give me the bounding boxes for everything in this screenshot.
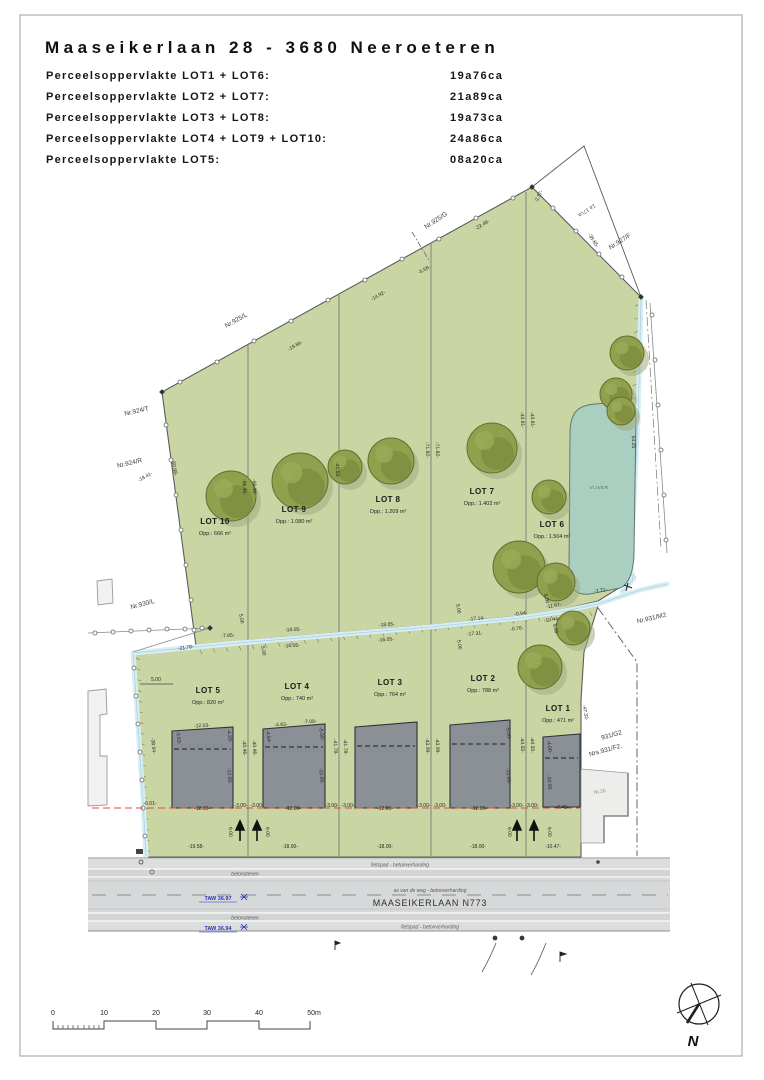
dimension-label: -12.00- [194,806,210,812]
area-row-label: Perceelsoppervlakte LOT5: [46,154,220,166]
lot-area: Opp.: 666 m² [199,531,231,537]
fence-post-icon [400,257,404,261]
lot-area: Opp.: 820 m² [192,700,224,706]
dimension-label: -18.05- [284,643,300,650]
lot-area: Opp.: 788 m² [467,688,499,694]
scale-tick-label: 30 [203,1010,211,1017]
dimension-label: -19.58- [188,844,204,850]
dimension-label: -41.78- [342,739,349,755]
dimension-label: -44.55- [529,737,536,753]
fence-post-icon [183,627,187,631]
pond-label: VIJVER [590,485,609,490]
fence-post-icon [437,237,441,241]
dimension-label: 54.25 [630,436,636,449]
neighbour-building [88,689,107,806]
dimension-label: -47.32- [581,705,590,722]
dimension-label: -3.00- [510,803,523,809]
stones-label-bottom: betonstenen [231,916,259,922]
parcel-label: Nrs.931/F2. [588,743,623,759]
area-row-label: Perceelsoppervlakte LOT2 + LOT7: [46,91,270,103]
area-row-value: 08a20ca [450,154,503,166]
lot-area: Opp.: 1.504 m² [534,534,571,540]
fence-post-icon [164,423,168,427]
dimension-label: -71.82- [434,442,441,458]
dimension-label: -41.78- [332,739,339,755]
lot-label: LOT 5 [196,686,221,695]
dimension-label: -4.93- [274,722,288,729]
fence-post-icon [252,339,256,343]
dimension-label: -18.00- [282,844,298,850]
scale-tick-label: 10 [100,1010,108,1017]
fence-post-icon [363,278,367,282]
dimension-label: 9.00 [546,827,553,837]
dimension-label: -12.00- [225,768,232,785]
area-row-label: Perceelsoppervlakte LOT4 + LOT9 + LOT10: [46,133,327,145]
dimension-label: -7.85- [221,633,235,640]
dimension-label: -3.00- [325,803,338,809]
dimension-label: 5.00 [151,677,161,683]
dimension-label: -3.00- [525,803,538,809]
dimension-label: -18.41- [137,470,154,483]
lot-label: LOT 3 [378,678,403,687]
lot-label: LOT 10 [200,517,230,526]
parcel-label: 931/G2 [600,729,623,741]
lot-label: LOT 9 [282,505,307,514]
dimension-label: -18.00- [470,844,486,850]
road-maaseikerlaan: fietspad - betonverharding betonstenen a… [88,858,670,932]
dimension-label: -18.05- [379,621,396,628]
fence-post-icon [140,778,144,782]
fence-post-icon [474,216,478,220]
dimension-label: -18.00- [377,844,393,850]
lot-label: LOT 1 [546,704,571,713]
dimension-label: -6.01- [143,801,156,807]
fence-post-icon [597,252,601,256]
fence-post-icon [289,319,293,323]
fence-post-icon [178,380,182,384]
dimension-label: -16.05- [378,636,395,643]
lot-label: LOT 8 [376,495,401,504]
parcel-label: Nr.924/R [116,457,143,470]
fence-post-icon [659,448,663,452]
lot-label: LOT 7 [470,487,495,496]
fence-post-icon [650,313,654,317]
fence-post-icon [200,626,204,630]
fence-post-icon [93,631,97,635]
dimension-label: -12.00- [285,806,301,812]
dimension-label: -10.47- [545,844,561,850]
fence-post-icon [111,630,115,634]
dimension-label: -12.00- [471,806,487,812]
fence-post-icon [215,360,219,364]
dimension-label: -10.00- [545,775,552,792]
fence-post-icon [136,722,140,726]
cycleway-label-bottom: fietspad - betonverharding [401,925,459,931]
dimension-label: -7.40- [555,805,568,811]
fence-post-icon [184,563,188,567]
fence-post-icon [174,493,178,497]
fence-post-icon [620,275,624,279]
cycleway-label-top: fietspad - betonverharding [371,863,429,869]
lot-area: Opp.: 764 m² [374,692,406,698]
lot-area: Opp.: 1.209 m² [370,509,407,515]
plan-title: Maaseikerlaan 28 - 3680 Neeroeteren [45,38,499,58]
area-row-value: 19a73ca [450,112,503,124]
neighbour-building [97,579,113,605]
dimension-label: -3.00- [234,803,247,809]
scale-tick-label: 40 [255,1010,263,1017]
dimension-label: -43.09- [434,738,441,754]
dimension-label: -41.53- [334,462,341,478]
scale-bar: 0 10 20 30 40 50m [51,1010,321,1029]
road-name-label: MAASEIKERLAAN N773 [373,898,487,908]
fence-post-icon [129,629,133,633]
lot-label: LOT 2 [471,674,496,683]
dimension-label: -40.46- [251,740,258,756]
dimension-label: -43.81- [519,412,526,428]
fence-post-icon [653,358,657,362]
dimension-label: -3.00- [417,803,430,809]
scale-tick-label: 0 [51,1010,55,1017]
scale-tick-label: 50m [307,1010,321,1017]
area-row-label: Perceelsoppervlakte LOT1 + LOT6: [46,70,270,82]
dimension-label: -43.81- [529,412,536,428]
fence-post-icon [511,196,515,200]
dimension-label: -18.05- [285,627,301,634]
dimension-label: -44.55- [519,737,526,753]
dimension-label: -71.82- [424,442,431,458]
lot-area: Opp.: 740 m² [281,696,313,702]
north-arrow: N [677,983,721,1050]
fence-post-icon [664,538,668,542]
scale-tick-label: 20 [152,1010,160,1017]
fence-post-icon [147,628,151,632]
fence-post-icon [189,598,193,602]
fence-post-icon [656,403,660,407]
north-label: N [688,1033,700,1050]
parcel-label: Nr.925/G [423,211,449,231]
parcel-label: Nr.931/M2 [636,612,667,626]
fence-post-icon [574,229,578,233]
dimension-label: -3.00- [250,803,263,809]
fence-post-icon [326,298,330,302]
drawing-sheet: Maaseikerlaan 28 - 3680 Neeroeteren Perc… [0,0,764,1080]
area-row-label: Perceelsoppervlakte LOT3 + LOT8: [46,112,270,124]
dimension-label: 9.00 [227,827,234,837]
dimension-label: -12.00- [317,768,324,785]
lot-label: LOT 4 [285,682,310,691]
dimension-label: -40.46- [241,740,248,756]
fence-post-icon [551,206,555,210]
dimension-label: -12.00- [377,806,393,812]
parcel-label: Nr.930/L [130,598,156,611]
area-row-value: 19a76ca [450,70,503,82]
fence-post-icon [138,750,142,754]
neighbour-building-nr26 [581,769,628,843]
lot-label: LOT 6 [540,520,565,529]
road-axis-label: as van de weg - betonverharding [394,888,467,894]
fence-post-icon [132,666,136,670]
dimension-label: -12.00- [504,768,511,785]
dimension-label: 9.00 [506,827,513,837]
fence-post-icon [134,694,138,698]
parcel-label: Nr.925/L [224,311,249,329]
fence-post-icon [143,834,147,838]
dimension-label: -56.46- [241,479,248,495]
dimension-label: -3.00- [433,803,446,809]
lot-area: Opp.: 471 m² [542,718,574,724]
svg-text:TAW 36.97: TAW 36.97 [204,896,231,902]
dimension-label: -3.00- [341,803,354,809]
dimension-label: -12.03- [194,723,210,730]
fence-post-icon [192,628,196,632]
svg-text:TAW 36.94: TAW 36.94 [204,926,232,932]
dimension-label: -56.46- [251,479,258,495]
dimension-label: 9.00 [264,827,271,837]
parcel-label: Nr.924/T [124,405,150,417]
lot-area: Opp.: 1.402 m² [464,501,501,507]
fence-post-icon [179,528,183,532]
dimension-label: -7.09- [303,719,317,726]
area-row-value: 21a89ca [450,91,503,103]
area-row-value: 24a86ca [450,133,503,145]
dimension-label: -43.09- [424,738,431,754]
lot-area: Opp.: 1.080 m² [276,519,313,525]
stones-label-top: betonstenen [231,872,259,878]
fence-post-icon [165,627,169,631]
fence-post-icon [662,493,666,497]
